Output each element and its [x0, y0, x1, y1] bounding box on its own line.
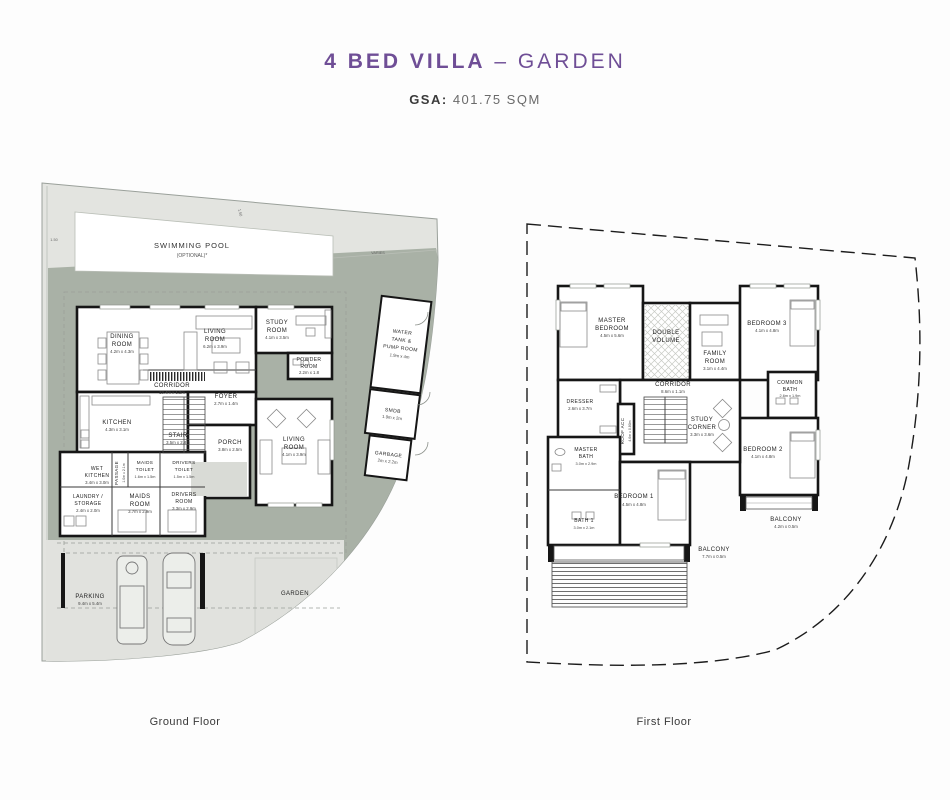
first-floor-caption: First Floor: [574, 716, 754, 728]
living-dims: 6.2m x 3.9m: [203, 344, 227, 349]
bedroom2-dims: 4.1m x 4.8m: [751, 454, 775, 459]
passage-dims: 1.0m x 2.1m: [122, 463, 126, 482]
double-volume-label-1: DOUBLE: [652, 330, 679, 336]
first-floor-plan: MASTER BEDROOM 4.5m x 5.6m DOUBLE VOLUME…: [527, 224, 920, 665]
maids-room-label-2: ROOM: [130, 502, 150, 508]
parking-label: PARKING: [75, 594, 104, 600]
kitchen-dims: 4.3m x 3.1m: [105, 427, 129, 432]
drivers-toilet-label-2: TOILET: [175, 467, 193, 472]
master-bedroom-dims: 4.5m x 5.6m: [600, 333, 624, 338]
passage-label: PASSAGE: [114, 461, 119, 485]
balcony-right-label: BALCONY: [770, 517, 801, 523]
corridor-label: CORRIDOR: [154, 383, 190, 389]
corridor-rug: [150, 372, 205, 381]
balcony-right-cap-left: [740, 495, 746, 511]
garden-label: GARDEN: [281, 591, 309, 597]
pool-label: SWIMMING POOL: [154, 241, 230, 250]
master-bath-label-1: MASTER: [574, 447, 597, 453]
bedroom3-dims: 4.1m x 4.8m: [755, 328, 779, 333]
bedroom1-label: BEDROOM 1: [614, 494, 654, 500]
master-bath-label-2: BATH: [579, 454, 594, 460]
dining-dims: 4.2m x 4.3m: [110, 349, 134, 354]
balcony-right-dims: 4.2m x 0.5m: [774, 524, 798, 529]
first-stair-flight-2: [665, 397, 687, 443]
bedroom3-label: BEDROOM 3: [747, 321, 787, 327]
drivers-room-label-2: ROOM: [175, 499, 192, 505]
wet-kitchen-label-2: KITCHEN: [85, 473, 110, 479]
maids-room-label-1: MAIDS: [129, 494, 150, 500]
parking-wall-right: [200, 553, 205, 609]
bedroom2-label: BEDROOM 2: [743, 447, 783, 453]
dresser-label: DRESSER: [567, 399, 594, 405]
bath1-label: BATH 1: [574, 518, 594, 524]
varies-label: VARIES: [371, 251, 385, 255]
study-label-1: STUDY: [266, 320, 288, 326]
maids-room-dims: 3.7m x 2.9m: [128, 509, 152, 514]
garden-zone: [255, 558, 337, 644]
ground-floor-plan: SWIMMING POOL (OPTIONAL)* VARIES 1.50 1.…: [42, 183, 438, 661]
study-dims: 4.1m x 3.5m: [265, 335, 289, 340]
wet-kitchen-dims: 3.4m x 3.0m: [85, 480, 109, 485]
family-room-label-2: ROOM: [705, 359, 725, 365]
family-room-dims: 3.1m x 4.4m: [703, 366, 727, 371]
foyer-dims: 2.7m x 1.4m: [214, 401, 238, 406]
living2-label-2: ROOM: [284, 445, 304, 451]
dining-label-2: ROOM: [112, 342, 132, 348]
wet-kitchen-label-1: WET: [91, 466, 103, 472]
master-bath-dims: 3.0m x 2.9m: [576, 462, 597, 466]
first-corridor-label: CORRIDOR: [655, 382, 691, 388]
roof-acc-dims: 4.6m x 0.80m: [628, 420, 632, 441]
page-title-main: 4 BED VILLA: [324, 50, 485, 73]
study-corner-dims: 3.3m x 3.6m: [690, 432, 714, 437]
maids-toilet-label-2: TOILET: [136, 467, 154, 472]
drivers-room-dims: 3.3m x 2.9m: [172, 506, 196, 511]
drivers-toilet-label-1: DRIVERS: [172, 460, 195, 465]
first-corridor-dims: 8.6m x 1.1m: [661, 389, 685, 394]
balcony-right-cap-right: [812, 495, 818, 511]
master-bedroom-label-2: BEDROOM: [595, 326, 629, 332]
gsa-label: GSA:: [409, 92, 448, 107]
dresser-dims: 2.6m x 3.7m: [568, 406, 592, 411]
balcony-bottom-label: BALCONY: [698, 547, 729, 553]
living2-label-1: LIVING: [283, 437, 305, 443]
kitchen-label: KITCHEN: [102, 420, 131, 426]
maids-toilet-dims: 1.6m x 1.5m: [135, 475, 156, 479]
pergola-louvers: [552, 562, 687, 607]
study-label-2: ROOM: [267, 328, 287, 334]
roof-acc-label: ROOF ACC: [620, 417, 625, 444]
corridor-dims: 13.4m x 1.2m: [159, 390, 185, 395]
balcony-bottom-cap-left: [548, 544, 554, 562]
living2-dims: 4.1m x 3.9m: [282, 452, 306, 457]
common-bath-label-2: BATH: [783, 387, 798, 393]
first-stair-flight-1: [644, 397, 665, 443]
bedroom1-dims: 4.5m x 4.8m: [622, 502, 646, 507]
stair-dims: 3.5m x 2.8m: [166, 440, 190, 445]
gsa-value: 401.75 SQM: [453, 92, 541, 107]
parking-dims: 9.4m x 5.4m: [78, 601, 102, 606]
double-volume-label-2: VOLUME: [652, 338, 680, 344]
page-title: 4 BED VILLA – GARDEN: [0, 50, 950, 74]
setback-left-label: 1.50: [50, 238, 57, 242]
maids-toilet-label-1: MAIDS: [137, 460, 154, 465]
master-bedroom-label-1: MASTER: [598, 318, 626, 324]
balcony-bottom-dims: 7.7m x 0.5m: [702, 554, 726, 559]
porch-dims: 3.8m x 2.5m: [218, 447, 242, 452]
porch-step: [191, 462, 247, 496]
plans-drawing: SWIMMING POOL (OPTIONAL)* VARIES 1.50 1.…: [0, 0, 950, 800]
study-corner-label-2: CORNER: [688, 425, 717, 431]
pool-sublabel: (OPTIONAL)*: [177, 253, 208, 259]
parking-wall-left: [61, 553, 65, 608]
foyer-label: FOYER: [215, 394, 238, 400]
laundry-dims: 2.4m x 2.0m: [76, 508, 100, 513]
ground-floor-caption: Ground Floor: [95, 716, 275, 728]
common-bath-label-1: COMMON: [777, 380, 803, 386]
laundry-label-1: LAUNDRY /: [73, 494, 103, 500]
floorplan-sheet: 4 BED VILLA – GARDEN GSA: 401.75 SQM: [0, 0, 950, 800]
balcony-bottom-cap-right: [684, 544, 690, 562]
porch-label: PORCH: [218, 440, 242, 446]
laundry-label-2: STORAGE: [74, 501, 101, 507]
powder-dims: 2.2m x 1.8: [299, 370, 320, 375]
living-label-1: LIVING: [204, 329, 226, 335]
living-label-2: ROOM: [205, 337, 225, 343]
study-corner-label-1: STUDY: [691, 417, 713, 423]
drivers-room-label-1: DRIVERS: [171, 492, 196, 498]
bath1-dims: 3.0m x 2.1m: [574, 526, 595, 530]
powder-label-1: POWDER: [297, 357, 322, 363]
dining-label-1: DINING: [110, 334, 133, 340]
page-title-rest: – GARDEN: [494, 50, 625, 73]
common-bath-dims: 2.6m x 1.9m: [780, 394, 801, 398]
drivers-toilet-dims: 1.5m x 1.5m: [174, 475, 195, 479]
stair-label: STAIR: [168, 433, 187, 439]
balcony-bottom: [554, 546, 684, 560]
family-room-label-1: FAMILY: [703, 351, 726, 357]
gsa-line: GSA: 401.75 SQM: [0, 92, 950, 107]
